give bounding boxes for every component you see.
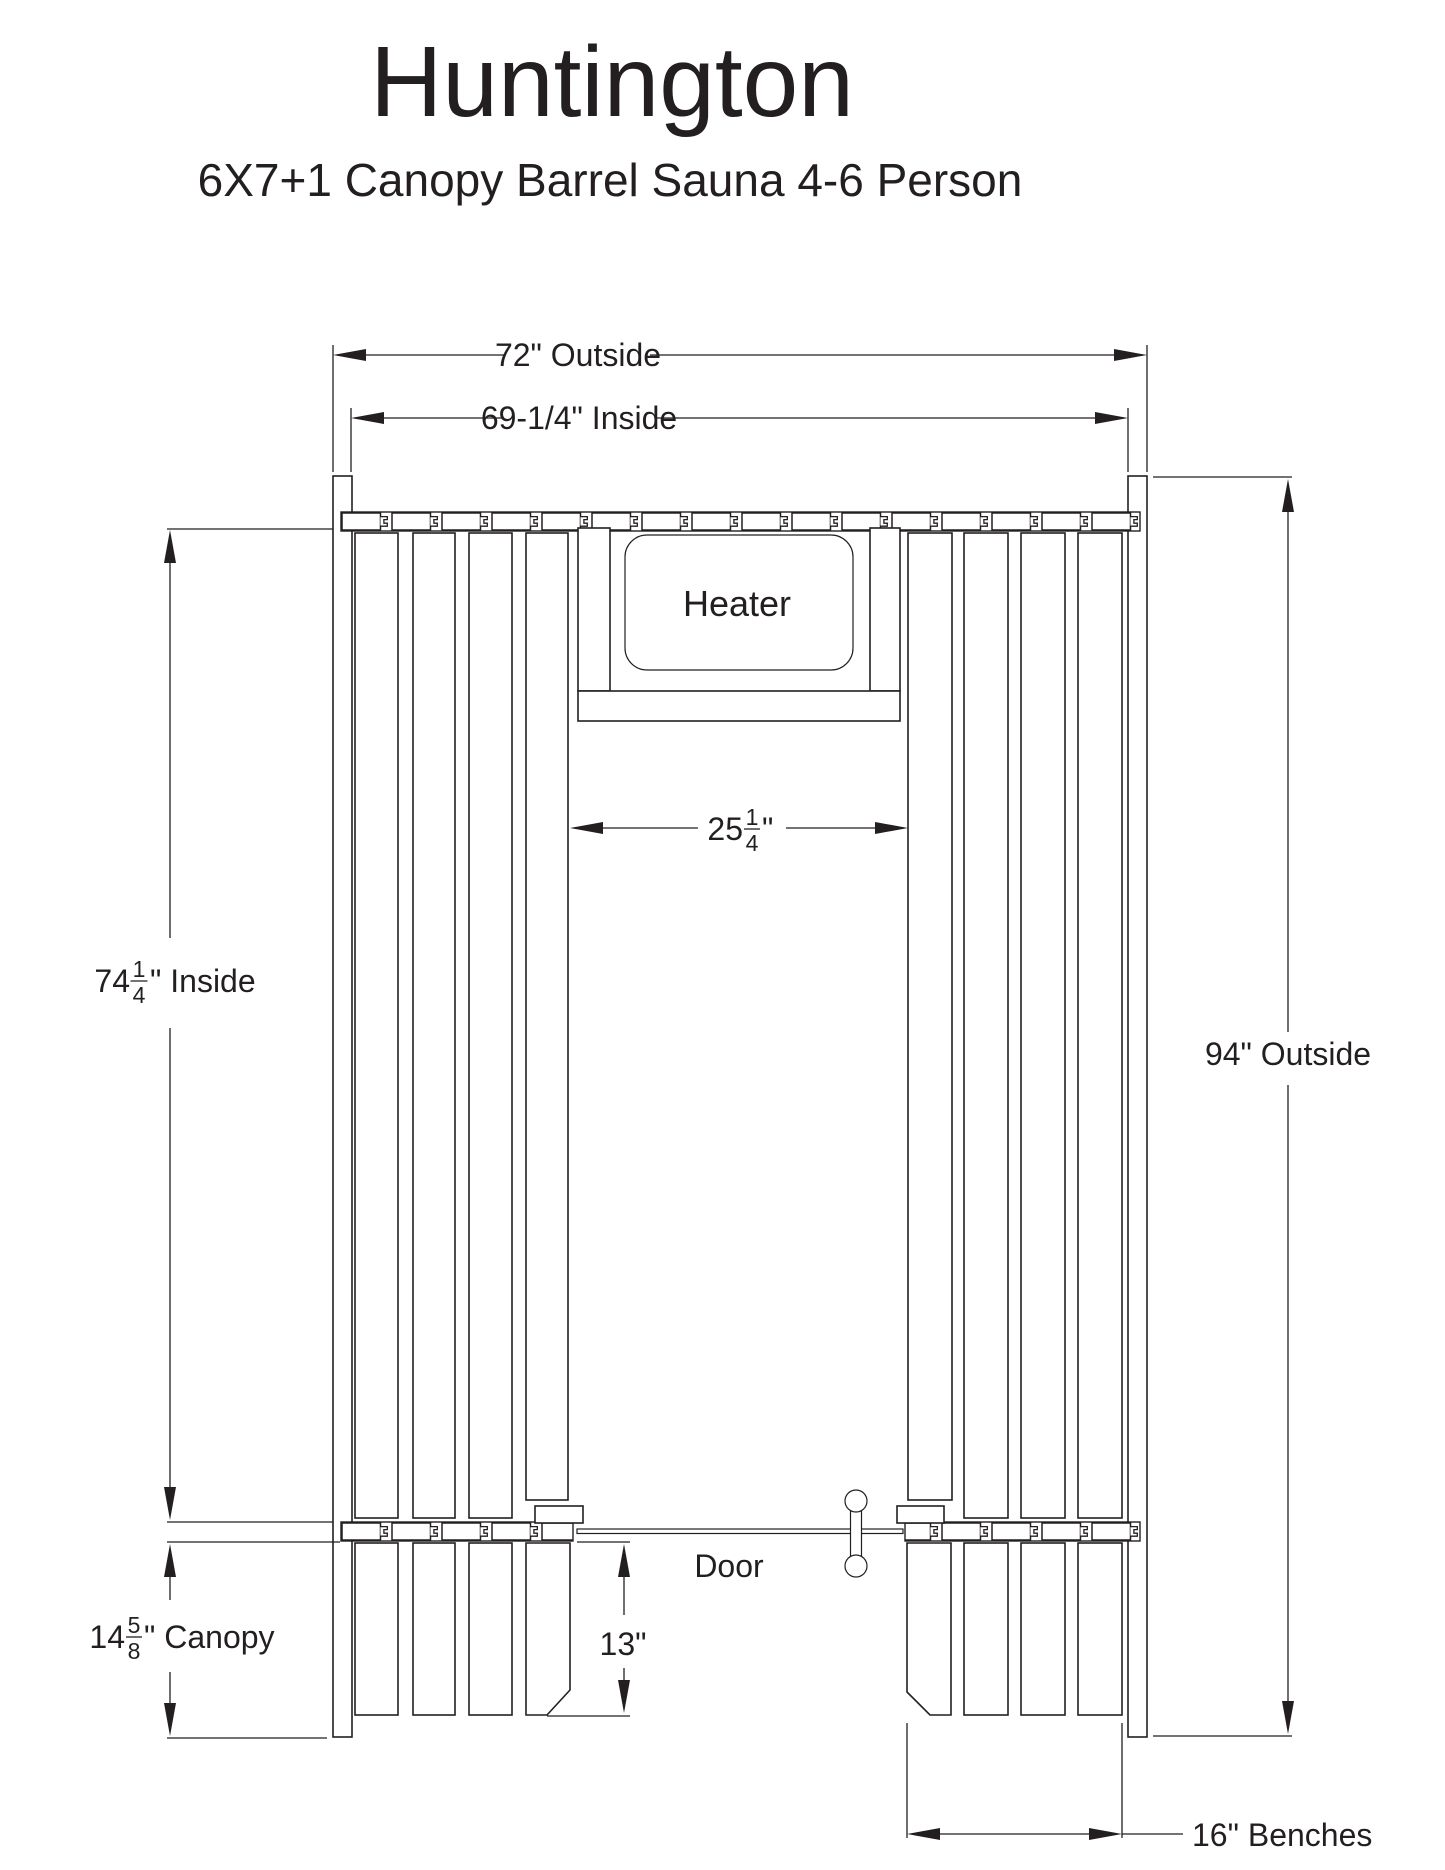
right-side-rail (1128, 476, 1147, 1737)
bench-slat (964, 533, 1008, 1518)
dim-label-outside-depth: 94" Outside (1205, 1036, 1371, 1072)
arrowhead (164, 1487, 176, 1520)
canopy-bench-slat-chamfered (526, 1543, 570, 1715)
dimension-outside-width: 72" Outside (333, 337, 1147, 472)
dim-label-walkway-numerator: 1 (746, 804, 759, 830)
blueprint-page: Huntington 6X7+1 Canopy Barrel Sauna 4-6… (0, 0, 1445, 1870)
dimension-walkway-width: 25 1 4 " (570, 804, 908, 856)
bench-slat (469, 533, 512, 1518)
arrowhead (618, 1544, 630, 1577)
bench-slat (355, 533, 398, 1518)
bench-slat (1078, 533, 1122, 1518)
arrowhead (1095, 412, 1128, 424)
arrowhead (1114, 349, 1147, 361)
canopy-bench-slat (1021, 1543, 1065, 1715)
dimension-inside-width: 69-1/4" Inside (351, 400, 1128, 472)
door-handle-bar (851, 1510, 862, 1556)
bench-slat (526, 533, 568, 1500)
arrowhead (618, 1680, 630, 1713)
dim-label-walkway-whole: 25 (707, 811, 743, 847)
dim-label-canopy-numerator: 5 (128, 1612, 141, 1638)
canopy-bench-slat (1078, 1543, 1122, 1715)
dimension-canopy-depth: 14 5 8 " Canopy (89, 1542, 340, 1738)
dimension-outside-depth: 94" Outside (1153, 477, 1371, 1736)
canopy-bench-slat (355, 1543, 398, 1715)
dim-label-canopy-whole: 14 (89, 1619, 125, 1655)
page-subtitle: 6X7+1 Canopy Barrel Sauna 4-6 Person (198, 154, 1023, 206)
heater-nook-shelf (578, 691, 900, 721)
arrowhead (907, 1828, 940, 1840)
dimension-bench-width: 16" Benches (907, 1723, 1372, 1853)
dim-label-canopy-suffix: " Canopy (144, 1619, 275, 1655)
door-jamb-right (897, 1506, 944, 1523)
arrowhead (164, 530, 176, 563)
dim-label-walkway-denominator: 4 (746, 830, 759, 856)
dimension-inside-depth: 74 1 4 " Inside (94, 529, 333, 1522)
door-handle-knob (845, 1490, 867, 1512)
door-handle-knob (845, 1555, 867, 1577)
arrowhead (333, 349, 366, 361)
heater-nook-post-left (578, 528, 610, 691)
bench-slat (413, 533, 455, 1518)
dim-label-inside-width: 69-1/4" Inside (481, 400, 677, 436)
dim-label-walkway-suffix: " (762, 811, 773, 847)
dim-label-inside-depth-whole: 74 (94, 963, 130, 999)
heater-label: Heater (683, 583, 791, 624)
arrowhead (1282, 479, 1294, 512)
door-label: Door (694, 1548, 764, 1584)
dim-label-inside-depth-numerator: 1 (133, 956, 146, 982)
arrowhead (1282, 1701, 1294, 1734)
front-wall-staves-left (341, 1522, 573, 1541)
canopy-bench-slat (964, 1543, 1008, 1715)
dim-label-inside-depth-denominator: 4 (133, 982, 146, 1008)
arrowhead (164, 1544, 176, 1577)
heater-nook-post-right (870, 528, 900, 691)
dim-label-bench-width: 16" Benches (1192, 1817, 1372, 1853)
dim-label-door-bench-depth: 13" (600, 1626, 647, 1662)
canopy-bench-slat-chamfered (907, 1543, 951, 1715)
front-wall-staves-right (905, 1522, 1140, 1541)
arrowhead (164, 1703, 176, 1736)
arrowhead (1089, 1828, 1122, 1840)
canopy-bench-slat (469, 1543, 512, 1715)
dim-label-inside-depth-suffix: " Inside (150, 963, 256, 999)
dim-label-canopy-denominator: 8 (128, 1638, 141, 1664)
bench-slat (908, 533, 952, 1500)
canopy-bench-slat (413, 1543, 455, 1715)
arrowhead (351, 412, 384, 424)
back-wall-staves (341, 512, 1140, 531)
bench-slat (1021, 533, 1065, 1518)
door-jamb-left (535, 1506, 583, 1523)
arrowhead (875, 822, 908, 834)
page-title: Huntington (370, 26, 854, 138)
left-side-rail (333, 476, 352, 1737)
arrowhead (570, 822, 603, 834)
sauna-floorplan-diagram: Huntington 6X7+1 Canopy Barrel Sauna 4-6… (0, 0, 1445, 1870)
dim-label-outside-width: 72" Outside (495, 337, 661, 373)
